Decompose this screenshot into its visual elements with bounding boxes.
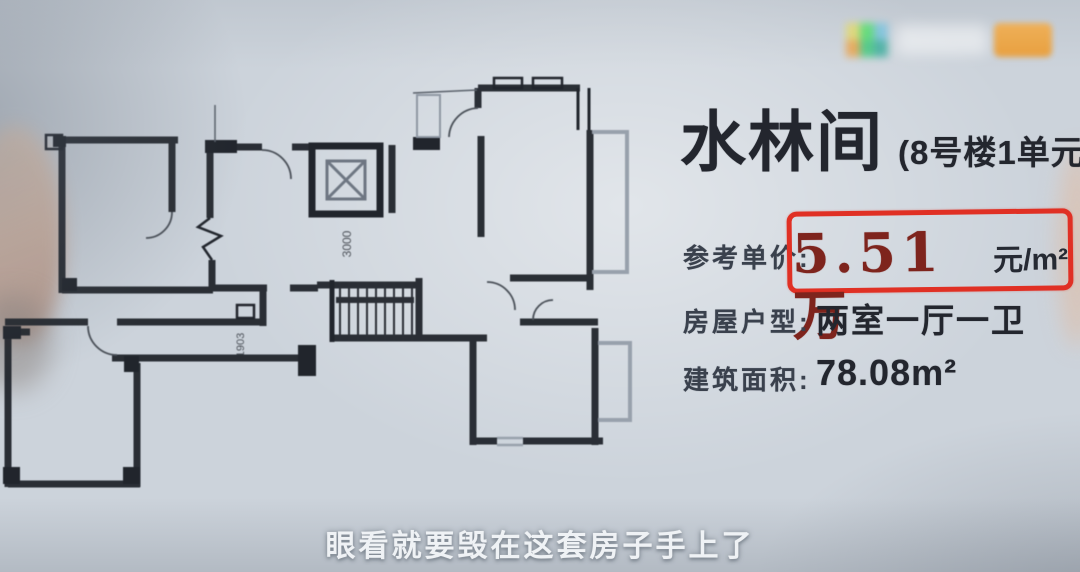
watermark-text-blur (896, 25, 988, 55)
listing-unit-info: (8号楼1单元1802 (898, 112, 1080, 174)
price-unit: 元/m² (993, 234, 1069, 279)
dimension-label: 3000 (340, 230, 354, 257)
price-highlight-box: 5.51万 元/m² (787, 208, 1074, 293)
stairs-icon (336, 282, 414, 340)
elevator-icon (312, 146, 380, 214)
video-frame: 3000 1903 水林间 (8号楼1单元1802 参考单价: 5.51万 元/… (0, 0, 1080, 572)
balcony-outline (497, 132, 630, 445)
floor-plan-walls (5, 88, 603, 487)
layout-value: 两室一厅一卫 (816, 294, 1026, 342)
watermark-logo-icon (846, 23, 888, 57)
wall-corner-blocks (3, 136, 440, 484)
break-line (198, 218, 221, 260)
layout-label: 房屋户型: (683, 302, 811, 339)
subtitle-text: 眼看就要毁在这套房子手上了 (0, 521, 1080, 565)
flue-line (215, 90, 477, 142)
dimension-label: 1903 (235, 333, 247, 357)
watermark-badge (994, 23, 1052, 57)
area-label: 建筑面积: (683, 360, 811, 397)
area-value: 78.08m² (816, 352, 957, 394)
watermark (846, 22, 1058, 58)
listing-title-row: 水林间 (8号楼1单元1802 (680, 108, 1080, 177)
listing-title: 水林间 (680, 108, 884, 177)
floor-plan: 3000 1903 (0, 60, 660, 520)
